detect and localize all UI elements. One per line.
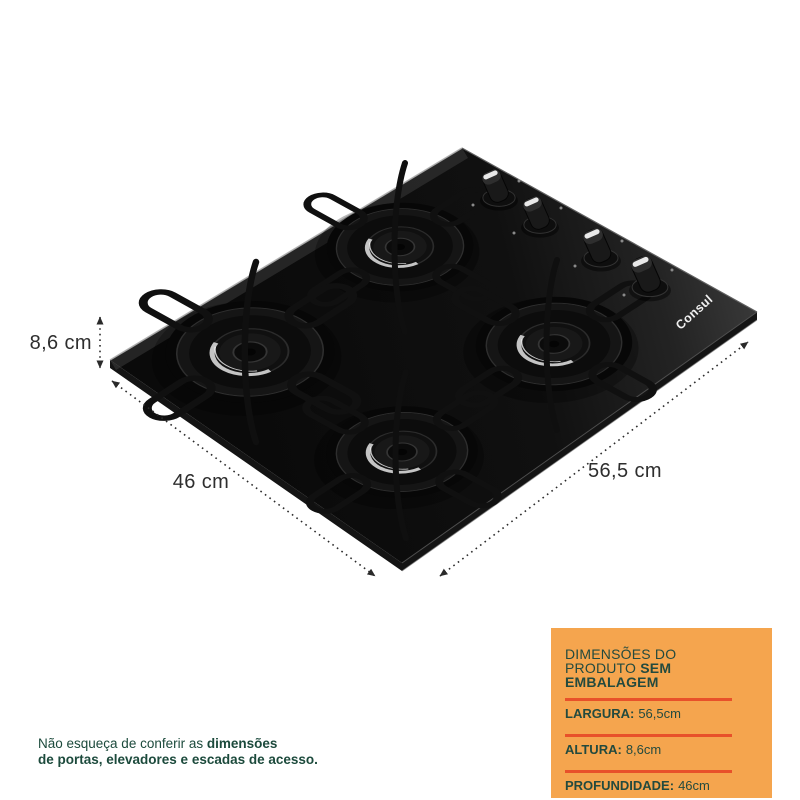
spec-box-title: DIMENSÕES DO PRODUTO SEM EMBALAGEM: [565, 648, 743, 689]
height-dimension-label: 8,6 cm: [18, 332, 92, 355]
spec-row-altura: ALTURA:8,6cm: [565, 737, 772, 761]
disclaimer-regular-text: Não esqueça de conferir as: [38, 736, 207, 751]
spec-row-altura-value: 8,6cm: [626, 742, 661, 757]
cooktop-body: [51, 143, 757, 571]
spec-row-largura-label: LARGURA:: [565, 706, 634, 721]
disclaimer-bold-text-2: de portas, elevadores e escadas de acess…: [38, 752, 318, 767]
spec-row-altura-label: ALTURA:: [565, 742, 622, 757]
width-dimension-label: 56,5 cm: [588, 460, 660, 483]
disclaimer-bold-text-1: dimensões: [207, 736, 278, 751]
spec-box: DIMENSÕES DO PRODUTO SEM EMBALAGEM LARGU…: [551, 628, 772, 798]
depth-dimension-label: 46 cm: [170, 471, 232, 494]
spec-title-line3-bold: EMBALAGEM: [565, 674, 659, 690]
access-disclaimer: Não esqueça de conferir as dimensões de …: [38, 736, 358, 767]
product-dimension-image: 8,6 cm 46 cm 56,5 cm Consul DIMENSÕES DO…: [0, 0, 800, 800]
spec-row-profundidade-value: 46cm: [678, 778, 710, 793]
spec-row-largura-value: 56,5cm: [638, 706, 681, 721]
spec-row-profundidade-label: PROFUNDIDADE:: [565, 778, 674, 793]
spec-row-profundidade: PROFUNDIDADE:46cm: [565, 773, 772, 797]
spec-row-largura: LARGURA:56,5cm: [565, 701, 772, 725]
